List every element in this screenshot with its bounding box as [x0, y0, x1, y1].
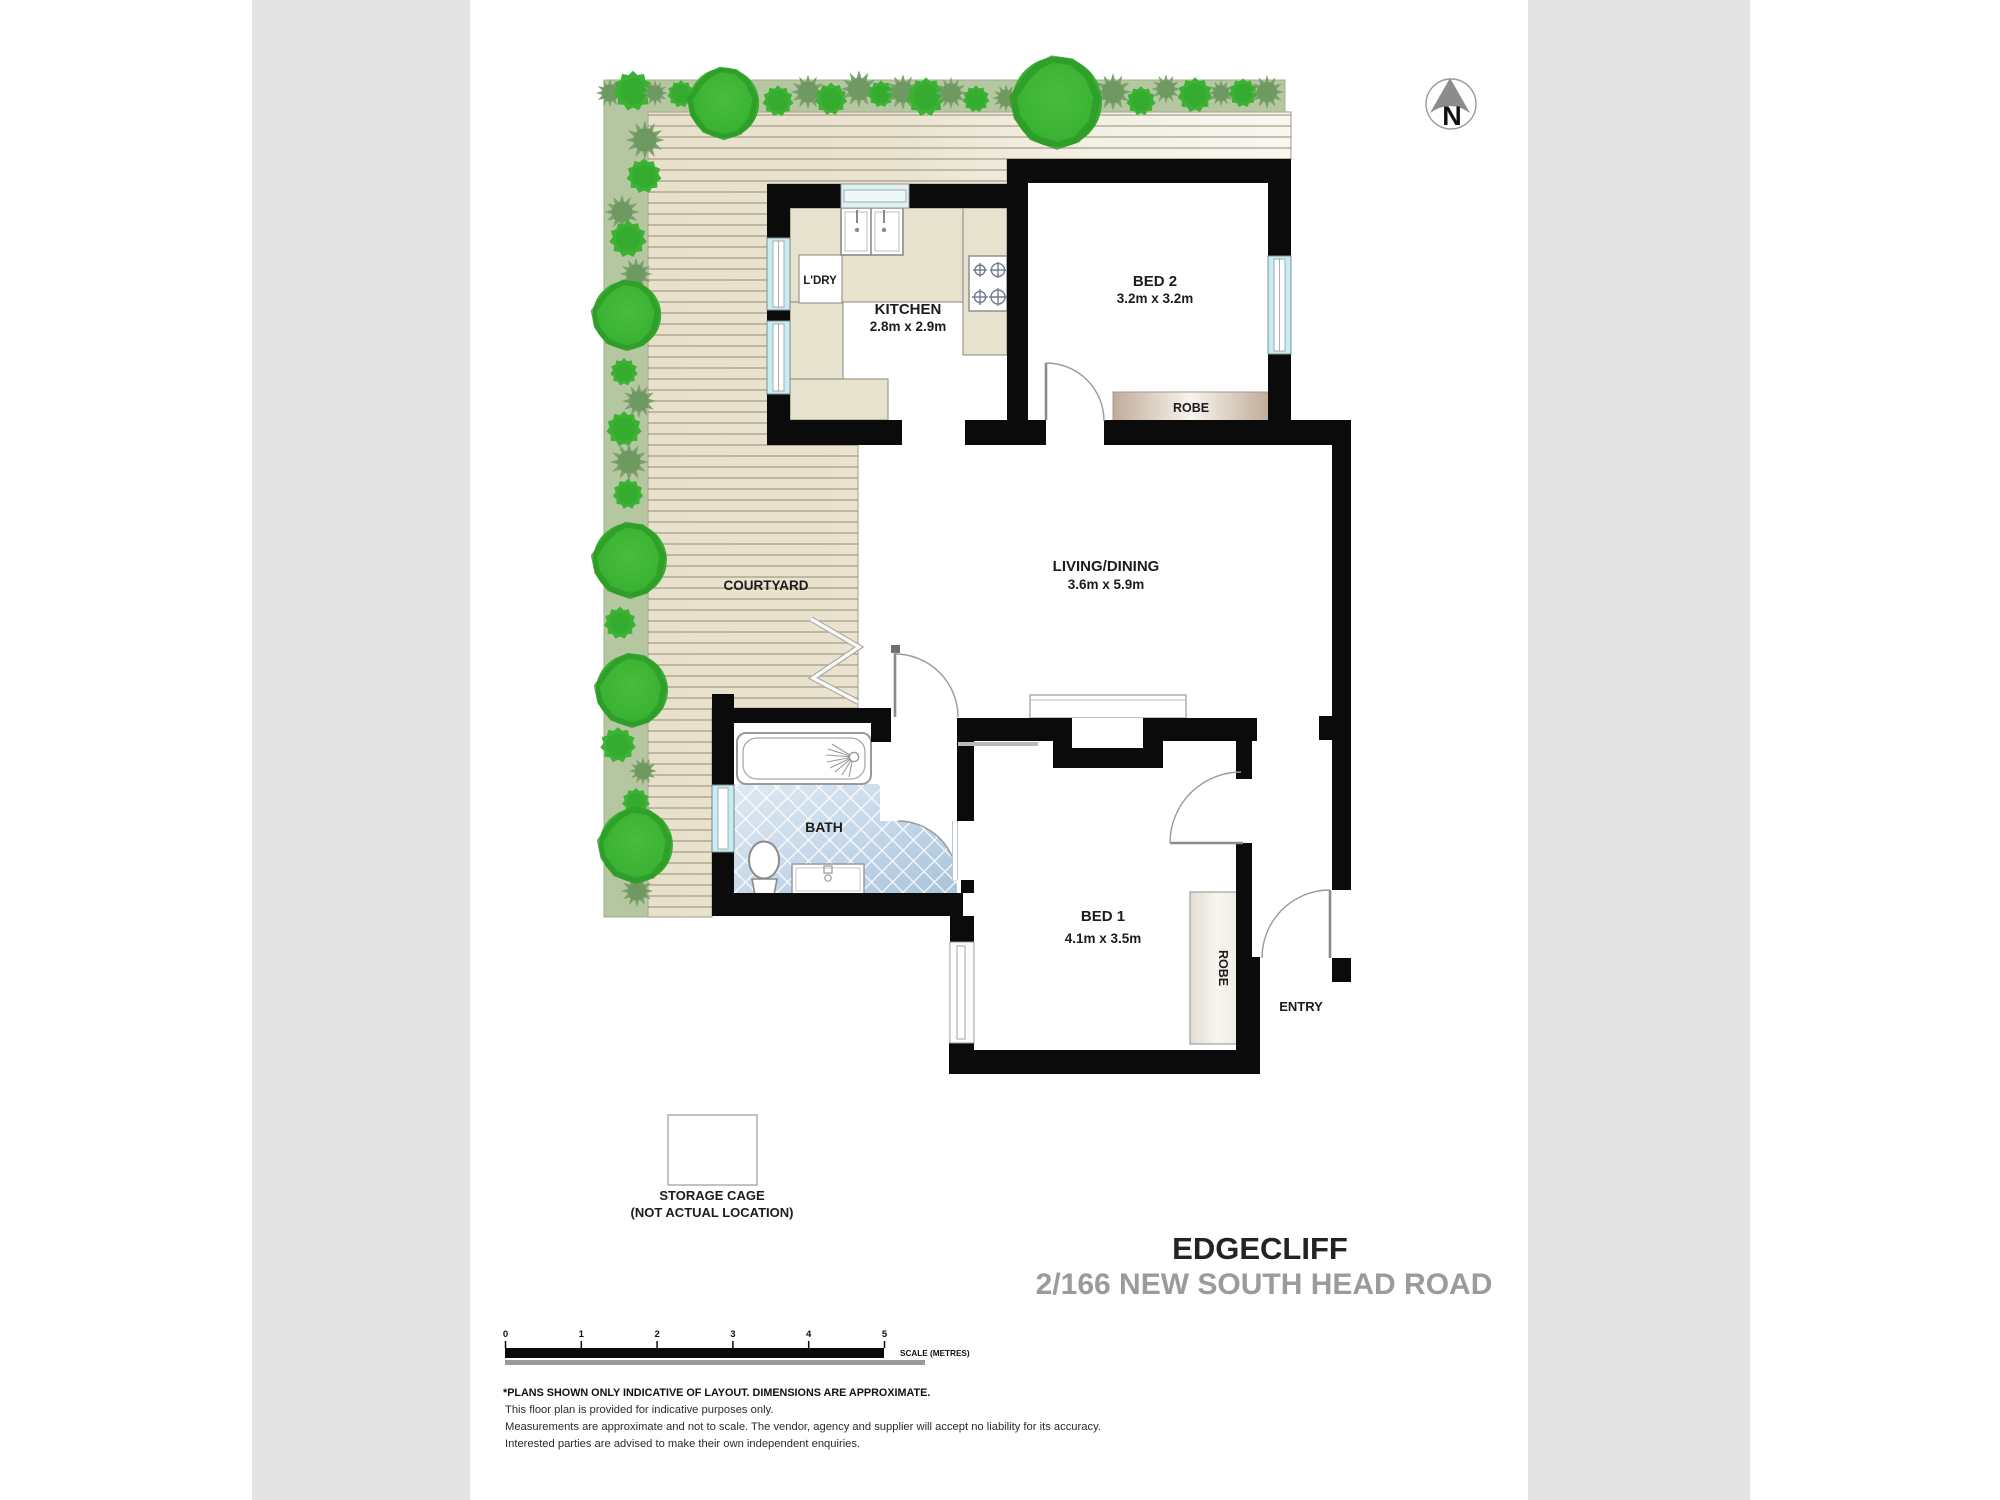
svg-text:STORAGE CAGE: STORAGE CAGE — [659, 1188, 765, 1203]
svg-text:BATH: BATH — [805, 819, 843, 835]
svg-text:BED 1: BED 1 — [1081, 908, 1125, 925]
svg-text:4.1m x 3.5m: 4.1m x 3.5m — [1065, 931, 1142, 946]
svg-text:4: 4 — [806, 1329, 812, 1340]
svg-text:BED 2: BED 2 — [1133, 273, 1177, 290]
svg-text:5: 5 — [882, 1329, 888, 1340]
svg-text:L'DRY: L'DRY — [803, 275, 837, 287]
svg-text:2: 2 — [654, 1329, 659, 1340]
svg-text:3: 3 — [730, 1329, 735, 1340]
svg-text:This floor plan is provided fo: This floor plan is provided for indicati… — [505, 1404, 773, 1416]
svg-text:*PLANS SHOWN ONLY INDICATIVE O: *PLANS SHOWN ONLY INDICATIVE OF LAYOUT. … — [503, 1387, 930, 1399]
svg-text:Interested parties are advised: Interested parties are advised to make t… — [505, 1438, 860, 1450]
svg-text:2.8m x 2.9m: 2.8m x 2.9m — [870, 319, 947, 334]
svg-text:ROBE: ROBE — [1173, 401, 1209, 415]
svg-text:(NOT ACTUAL LOCATION): (NOT ACTUAL LOCATION) — [631, 1205, 794, 1220]
svg-text:Measurements are approximate a: Measurements are approximate and not to … — [505, 1421, 1101, 1433]
svg-text:2/166 NEW SOUTH HEAD ROAD: 2/166 NEW SOUTH HEAD ROAD — [1036, 1268, 1493, 1301]
svg-text:N: N — [1442, 101, 1462, 131]
svg-text:0: 0 — [503, 1329, 508, 1340]
svg-text:COURTYARD: COURTYARD — [723, 578, 808, 593]
svg-text:EDGECLIFF: EDGECLIFF — [1172, 1231, 1348, 1266]
svg-text:3.6m x 5.9m: 3.6m x 5.9m — [1068, 577, 1145, 592]
svg-text:ROBE: ROBE — [1216, 950, 1230, 986]
svg-text:KITCHEN: KITCHEN — [875, 301, 942, 318]
svg-text:ENTRY: ENTRY — [1279, 999, 1323, 1014]
svg-text:3.2m x 3.2m: 3.2m x 3.2m — [1117, 291, 1194, 306]
svg-text:LIVING/DINING: LIVING/DINING — [1053, 558, 1160, 575]
svg-text:1: 1 — [579, 1329, 585, 1340]
svg-text:SCALE (METRES): SCALE (METRES) — [900, 1349, 970, 1358]
